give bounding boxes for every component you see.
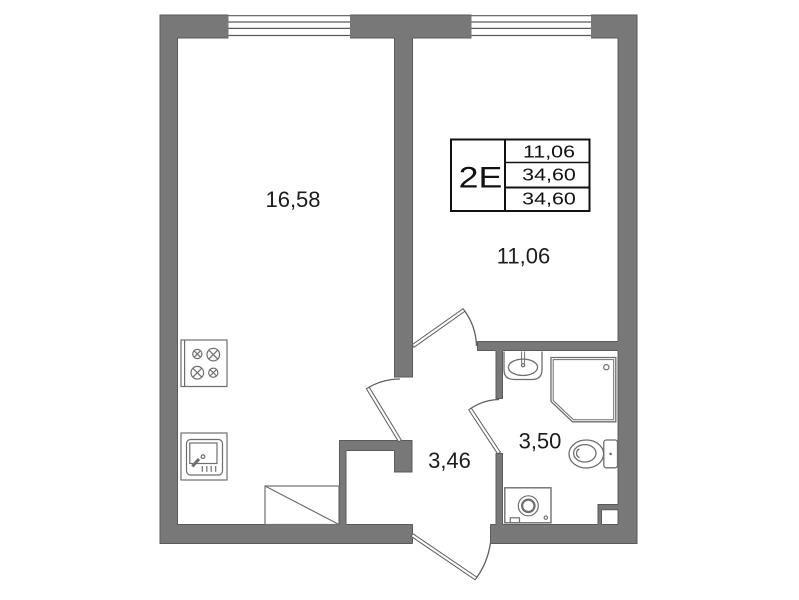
svg-text:34,60: 34,60	[522, 165, 576, 185]
svg-text:11,06: 11,06	[497, 244, 550, 269]
svg-text:11,06: 11,06	[523, 142, 575, 162]
svg-text:3,50: 3,50	[519, 429, 562, 454]
svg-text:2Е: 2Е	[459, 161, 503, 194]
svg-text:34,60: 34,60	[522, 189, 576, 209]
svg-text:16,58: 16,58	[265, 187, 320, 212]
svg-text:3,46: 3,46	[428, 448, 471, 473]
